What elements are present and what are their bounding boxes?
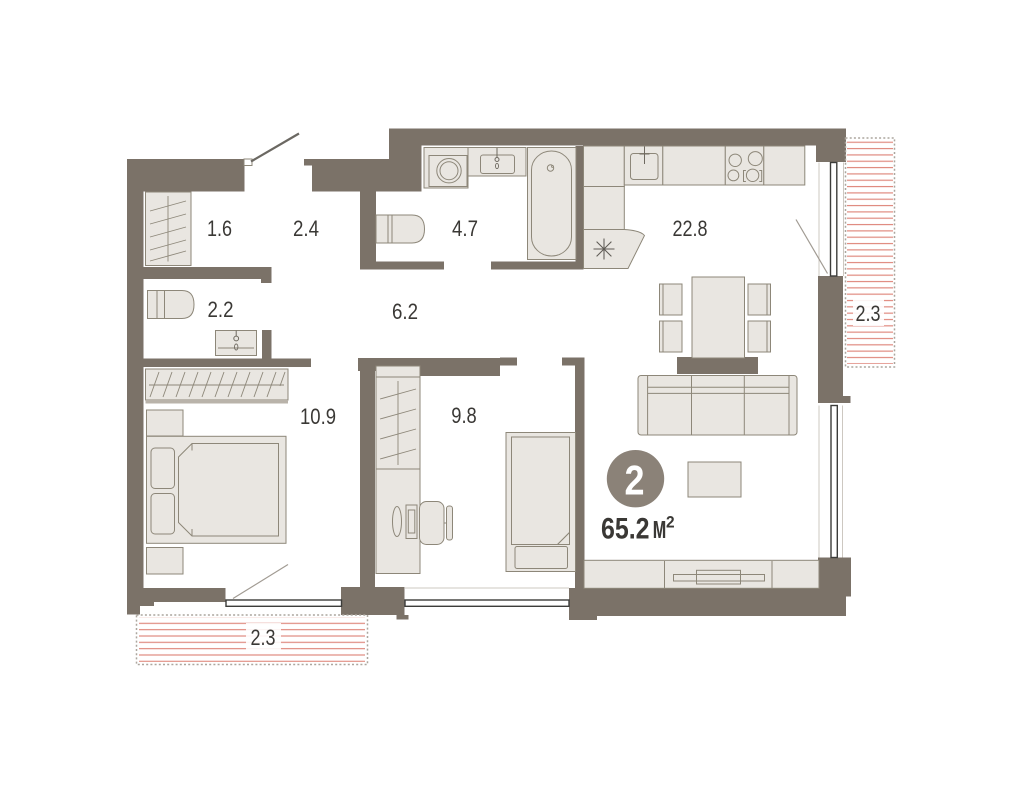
svg-text:22.8: 22.8: [673, 216, 708, 241]
svg-text:65.2: 65.2: [601, 513, 650, 546]
svg-text:2: 2: [666, 513, 675, 532]
svg-text:1.6: 1.6: [207, 216, 232, 241]
svg-text:2.2: 2.2: [208, 297, 234, 322]
svg-text:4.7: 4.7: [452, 216, 478, 241]
svg-text:6.2: 6.2: [392, 299, 418, 324]
svg-text:2.3: 2.3: [856, 301, 881, 326]
svg-text:м: м: [653, 509, 667, 545]
svg-text:10.9: 10.9: [300, 404, 336, 429]
svg-text:2.3: 2.3: [251, 625, 276, 650]
svg-text:2.4: 2.4: [293, 216, 319, 241]
svg-text:2: 2: [625, 457, 645, 504]
svg-text:9.8: 9.8: [451, 403, 477, 428]
